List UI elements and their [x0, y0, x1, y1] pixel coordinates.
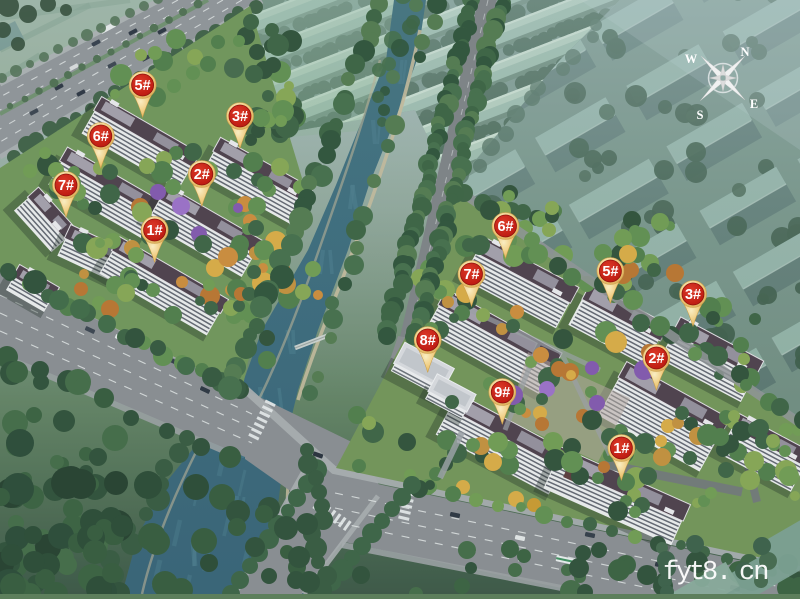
svg-text:8#: 8#	[420, 333, 436, 349]
svg-text:2#: 2#	[648, 351, 664, 367]
svg-text:1#: 1#	[613, 441, 629, 457]
svg-text:5#: 5#	[135, 78, 151, 94]
svg-text:3#: 3#	[685, 287, 701, 303]
svg-text:2#: 2#	[194, 167, 210, 183]
svg-text:7#: 7#	[58, 178, 74, 194]
svg-text:1#: 1#	[147, 223, 163, 239]
svg-text:6#: 6#	[497, 219, 513, 235]
svg-text:3#: 3#	[232, 109, 248, 125]
svg-text:E: E	[750, 97, 758, 111]
svg-text:fyt8.cn: fyt8.cn	[663, 558, 767, 588]
svg-text:W: W	[685, 52, 698, 66]
svg-text:N: N	[740, 45, 749, 59]
svg-text:6#: 6#	[93, 129, 109, 145]
svg-text:9#: 9#	[494, 385, 510, 401]
svg-text:7#: 7#	[463, 267, 479, 283]
svg-text:S: S	[697, 108, 704, 122]
svg-text:5#: 5#	[602, 264, 618, 280]
